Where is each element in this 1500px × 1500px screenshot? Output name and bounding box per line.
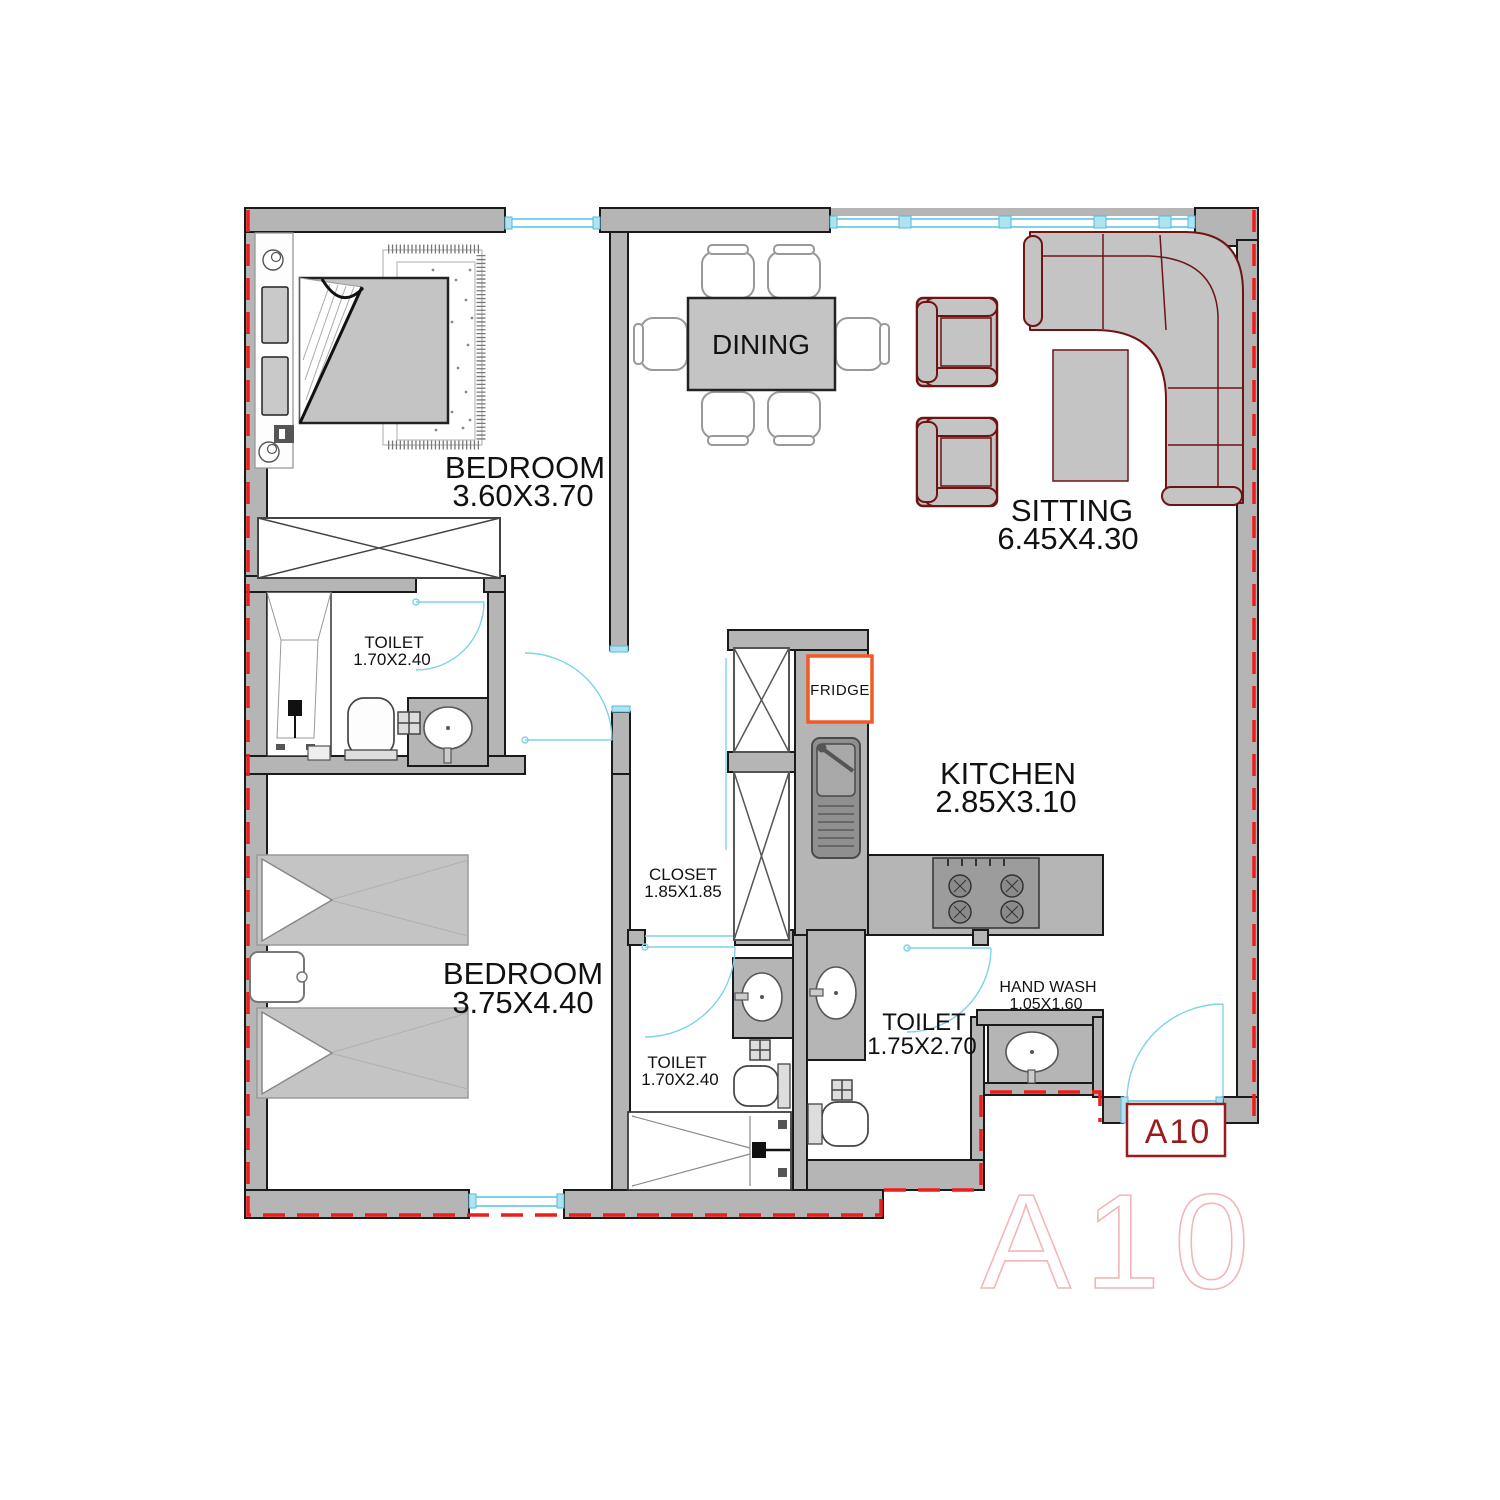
door-toilet2 <box>642 936 735 1037</box>
bedroom1-dim: 3.60X3.70 <box>452 478 593 513</box>
toilet2-dim: 1.70X2.40 <box>641 1070 719 1089</box>
dining-chair-icon <box>634 318 687 370</box>
stove-icon <box>933 858 1039 928</box>
shower-icon <box>267 592 331 756</box>
toilet1-dim: 1.70X2.40 <box>353 650 431 669</box>
toilet1-fixtures <box>267 592 472 763</box>
bedside-lamp-icon <box>263 250 283 270</box>
window-band-dining-sitting <box>830 216 1195 228</box>
sitting-dim: 6.45X4.30 <box>997 521 1138 556</box>
kitchen-dim: 2.85X3.10 <box>935 784 1076 819</box>
dining-chair-icon <box>768 245 820 298</box>
handwash-dim: 1.05X1.60 <box>1010 996 1083 1013</box>
closet-shelves <box>734 648 789 940</box>
floor-plan-drawing: BEDROOM 3.60X3.70 DINING SITTING 6.45X4.… <box>0 0 1500 1500</box>
coffee-table-icon <box>1053 350 1128 481</box>
dining-chair-icon <box>768 392 820 445</box>
bedside-lamp-icon <box>259 442 279 462</box>
window-bedroom1-top <box>505 217 600 229</box>
pillow-icon <box>262 287 288 343</box>
fridge-label: FRIDGE <box>810 682 870 699</box>
unit-watermark: A10 <box>981 1166 1263 1317</box>
toilet3-dim: 1.75X2.70 <box>867 1033 976 1060</box>
dining-chair-icon <box>702 245 754 298</box>
bathtub-icon <box>628 1112 791 1190</box>
window-bedroom2-bottom <box>469 1194 564 1208</box>
unit-label: A10 <box>1145 1113 1212 1151</box>
double-bed-icon <box>300 278 448 423</box>
shower-mixer-icon <box>398 712 420 734</box>
twin-bed-icon <box>257 855 468 945</box>
twin-bed-icon <box>257 1008 468 1098</box>
wc-icon <box>808 1102 868 1146</box>
pillow-icon <box>262 357 288 415</box>
wc-icon <box>734 1064 790 1108</box>
shower-mixer-icon <box>832 1080 852 1100</box>
shower-mixer-icon <box>750 1040 770 1060</box>
armchair-icon <box>917 298 997 386</box>
handwash-label: HAND WASH <box>999 979 1096 996</box>
headboard-unit <box>255 233 294 468</box>
nightstand-icon <box>250 952 307 1002</box>
bedroom2-furniture <box>250 855 468 1098</box>
closet-shelf-icon <box>734 772 789 940</box>
bedroom1-furniture <box>255 233 500 578</box>
sitting-furniture <box>917 232 1243 506</box>
toilet3-label: TOILET <box>882 1009 966 1036</box>
dining-chair-icon <box>836 318 889 370</box>
kitchen-sink-icon <box>812 738 860 858</box>
closet-dim: 1.85X1.85 <box>644 882 722 901</box>
armchair-icon <box>917 418 997 506</box>
unit-label-box: A10 <box>1127 1104 1225 1156</box>
dining-label: DINING <box>712 329 810 360</box>
closet-shelf-icon <box>734 648 789 752</box>
floor-plan-canvas: BEDROOM 3.60X3.70 DINING SITTING 6.45X4.… <box>0 0 1500 1500</box>
wardrobe-icon <box>258 518 500 578</box>
bedroom2-dim: 3.75X4.40 <box>452 985 593 1020</box>
dining-chair-icon <box>702 392 754 445</box>
